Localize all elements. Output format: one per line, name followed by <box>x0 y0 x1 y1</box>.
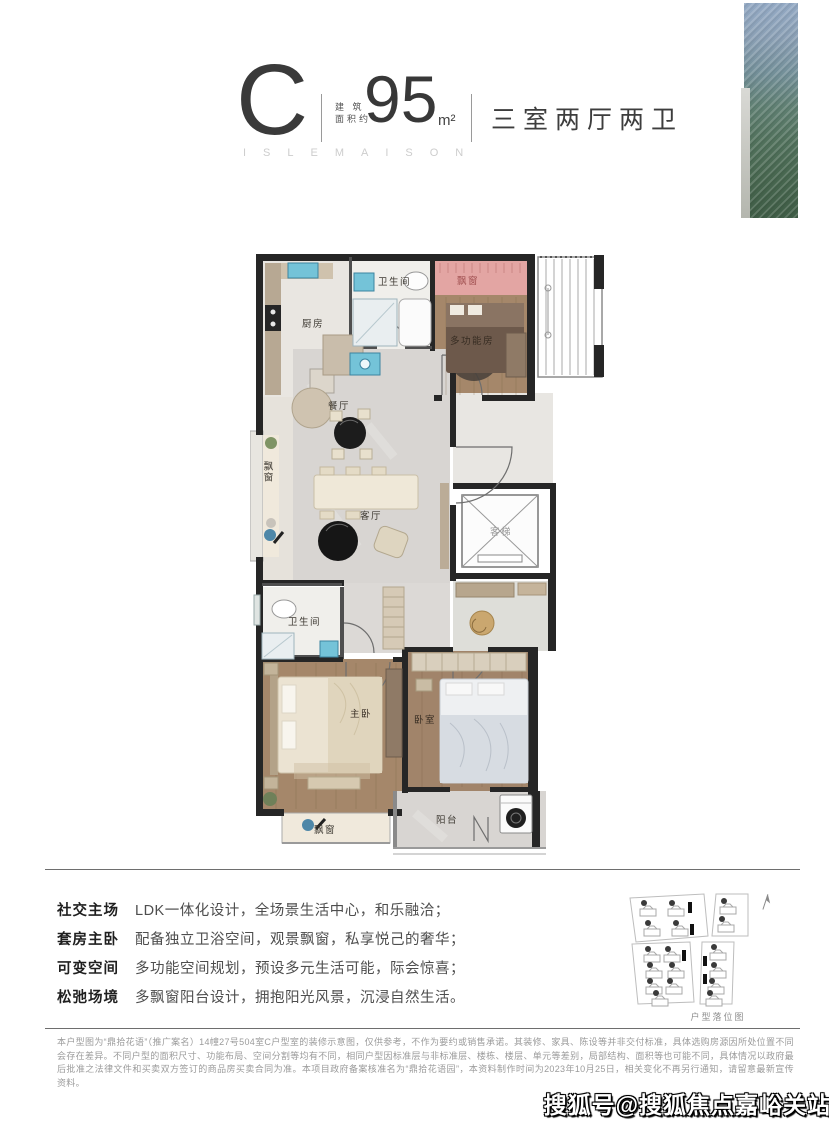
feature-label: 套房主卧 <box>57 928 135 949</box>
label-bay-bottom: 飘窗 <box>314 824 336 836</box>
sofa-icon <box>314 475 418 509</box>
feature-desc: 配备独立卫浴空间，观景飘窗，私享悦己的奢华； <box>135 928 465 949</box>
floor-plan: 厨房 卫生间 飘窗 多功能房 餐厅 飘窗 客厅 客梯 卫生间 主卧 卧室 飘窗 … <box>250 243 612 861</box>
feature-label: 可变空间 <box>57 957 135 978</box>
section-divider-top <box>45 869 800 870</box>
feature-desc: 多飘窗阳台设计，拥抱阳光风景，沉浸自然生活。 <box>135 986 465 1007</box>
label-bath-bottom: 卫生间 <box>288 616 321 628</box>
area-unit: m² <box>438 112 456 129</box>
unit-letter: C <box>236 50 308 150</box>
basin-icon <box>354 273 374 291</box>
label-master: 主卧 <box>350 708 372 720</box>
label-living: 客厅 <box>360 510 382 522</box>
sohu-watermark: 搜狐号@搜狐焦点嘉峪关站 <box>544 1086 829 1120</box>
coffee-table-icon <box>318 521 358 561</box>
tv-cabinet-icon <box>440 483 449 569</box>
brochure-page: C 建 筑面积约 95 m² 三室两厅两卫 ISLEMAISON <box>0 0 829 1125</box>
label-kitchen: 厨房 <box>302 318 324 330</box>
feature-row: 套房主卧 配备独立卫浴空间，观景飘窗，私享悦己的奢华； <box>57 928 465 946</box>
north-arrow-icon <box>763 894 773 911</box>
section-divider-bottom <box>45 1028 800 1029</box>
feature-list: 社交主场 LDK一体化设计，全场景生活中心，和乐融洽； 套房主卧 配备独立卫浴空… <box>57 899 465 1015</box>
balcony-fixtures <box>500 795 532 833</box>
basin-icon <box>320 641 338 657</box>
area-prefix-top: 建 筑 <box>335 102 365 112</box>
site-location-map: 户型落位图 <box>616 884 806 1034</box>
label-multi-room: 多功能房 <box>450 335 494 347</box>
glass-texture-artwork <box>744 3 798 218</box>
site-map-caption: 户型落位图 <box>690 1011 745 1022</box>
feature-row: 松弛场境 多飘窗阳台设计，拥抱阳光风景，沉浸自然生活。 <box>57 986 465 1004</box>
label-dining: 餐厅 <box>328 400 350 412</box>
glass-artwork-edge <box>741 88 750 218</box>
label-balcony: 阳台 <box>436 814 458 826</box>
label-bay-left: 飘窗 <box>262 461 274 483</box>
feature-row: 社交主场 LDK一体化设计，全场景生活中心，和乐融洽； <box>57 899 465 917</box>
stairwell <box>538 255 604 377</box>
label-elevator: 客梯 <box>490 526 512 538</box>
header-divider-2 <box>471 94 472 142</box>
feature-desc: LDK一体化设计，全场景生活中心，和乐融洽； <box>135 899 450 920</box>
area-value: 95 <box>364 66 437 132</box>
brand-wordmark: ISLEMAISON <box>243 147 480 159</box>
label-bedroom: 卧室 <box>414 714 436 726</box>
feature-label: 社交主场 <box>57 899 135 920</box>
header-divider-1 <box>321 94 322 142</box>
toilet-icon <box>272 600 296 618</box>
sink-icon <box>288 263 318 278</box>
label-bath-top: 卫生间 <box>378 276 411 288</box>
plant-icon <box>263 792 277 806</box>
label-bay-top: 飘窗 <box>457 275 479 287</box>
feature-label: 松弛场境 <box>57 986 135 1007</box>
feature-row: 可变空间 多功能空间规划，预设多元生活可能，际会惊喜； <box>57 957 465 975</box>
legal-disclaimer: 本户型图为“鼎拾花语”（推广案名）14幢27号504室C户型室的装修示意图，仅供… <box>57 1036 794 1090</box>
bathtub-icon <box>399 299 431 346</box>
plant-icon <box>265 437 277 449</box>
layout-description: 三室两厅两卫 <box>491 100 683 136</box>
stove-icon <box>265 305 281 331</box>
dining-table-icon <box>334 417 366 449</box>
feature-desc: 多功能空间规划，预设多元生活可能，际会惊喜； <box>135 957 465 978</box>
